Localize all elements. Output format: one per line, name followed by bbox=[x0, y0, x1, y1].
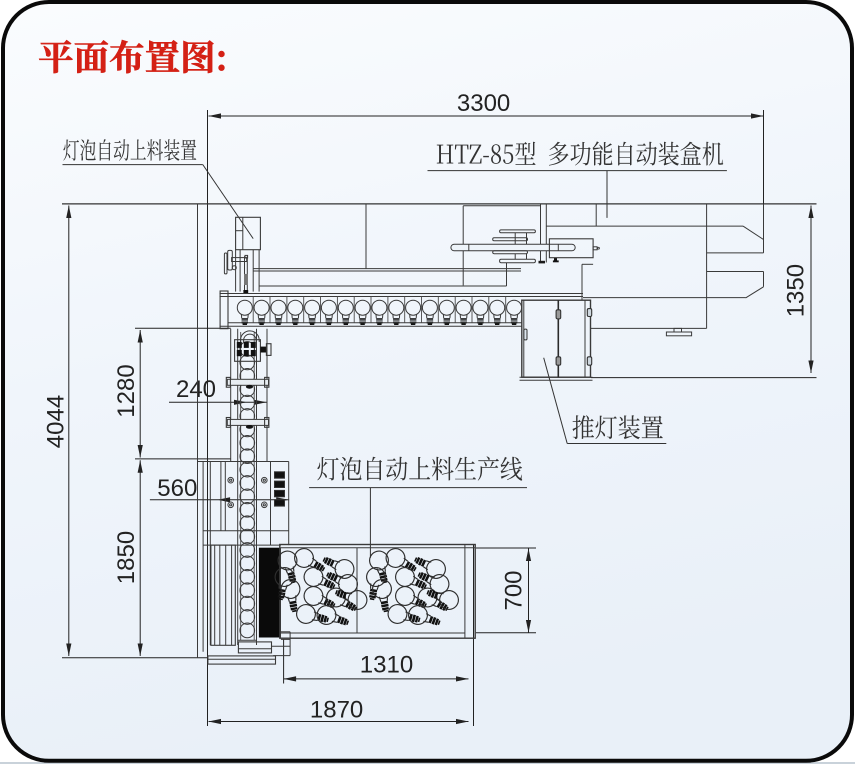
svg-text:1870: 1870 bbox=[310, 697, 363, 724]
svg-text:1350: 1350 bbox=[783, 264, 810, 317]
svg-text:4044: 4044 bbox=[43, 395, 70, 448]
svg-text:1850: 1850 bbox=[113, 531, 140, 584]
svg-text:560: 560 bbox=[157, 475, 197, 502]
svg-text:3300: 3300 bbox=[457, 90, 510, 117]
svg-text:1310: 1310 bbox=[360, 652, 413, 679]
svg-text:1280: 1280 bbox=[113, 364, 140, 417]
svg-text:700: 700 bbox=[501, 570, 528, 610]
svg-text:240: 240 bbox=[176, 376, 216, 403]
